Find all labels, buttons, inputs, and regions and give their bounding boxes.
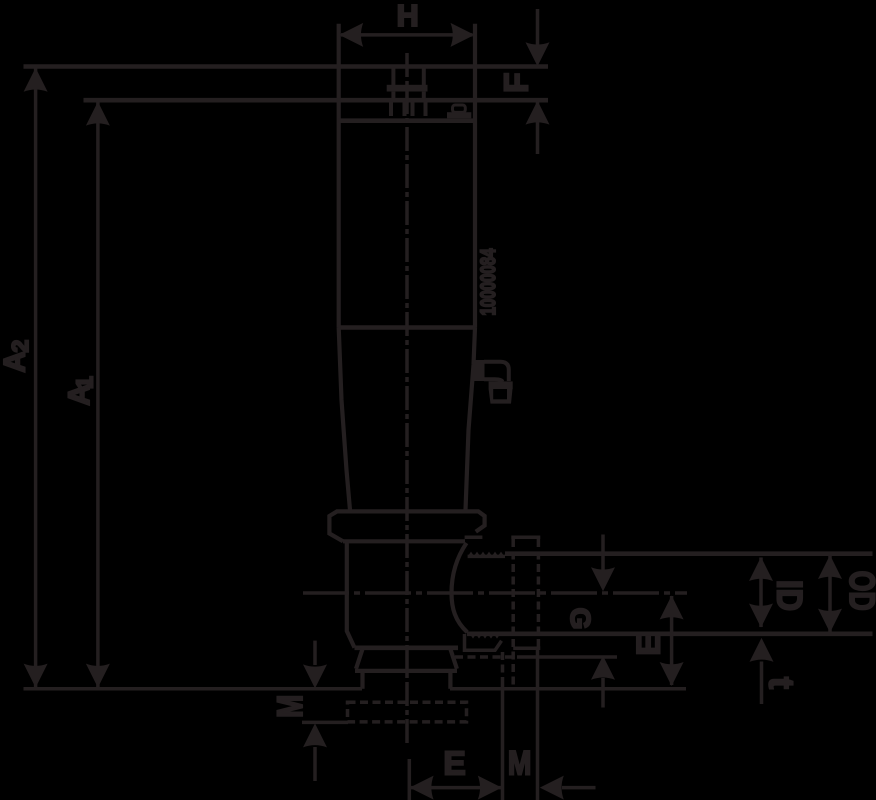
svg-text:10000084: 10000084 <box>476 248 500 315</box>
svg-text:E: E <box>443 745 465 782</box>
svg-text:F: F <box>498 73 535 93</box>
svg-text:A: A <box>0 351 31 372</box>
svg-text:1: 1 <box>72 376 98 389</box>
svg-text:M: M <box>271 695 310 718</box>
svg-text:ID: ID <box>769 580 808 611</box>
svg-text:2: 2 <box>7 340 33 353</box>
svg-text:M: M <box>508 744 532 782</box>
svg-text:t: t <box>761 677 801 689</box>
svg-text:E: E <box>631 634 667 656</box>
svg-text:OD: OD <box>842 571 876 611</box>
svg-text:H: H <box>397 0 419 33</box>
svg-text:G: G <box>565 608 596 630</box>
